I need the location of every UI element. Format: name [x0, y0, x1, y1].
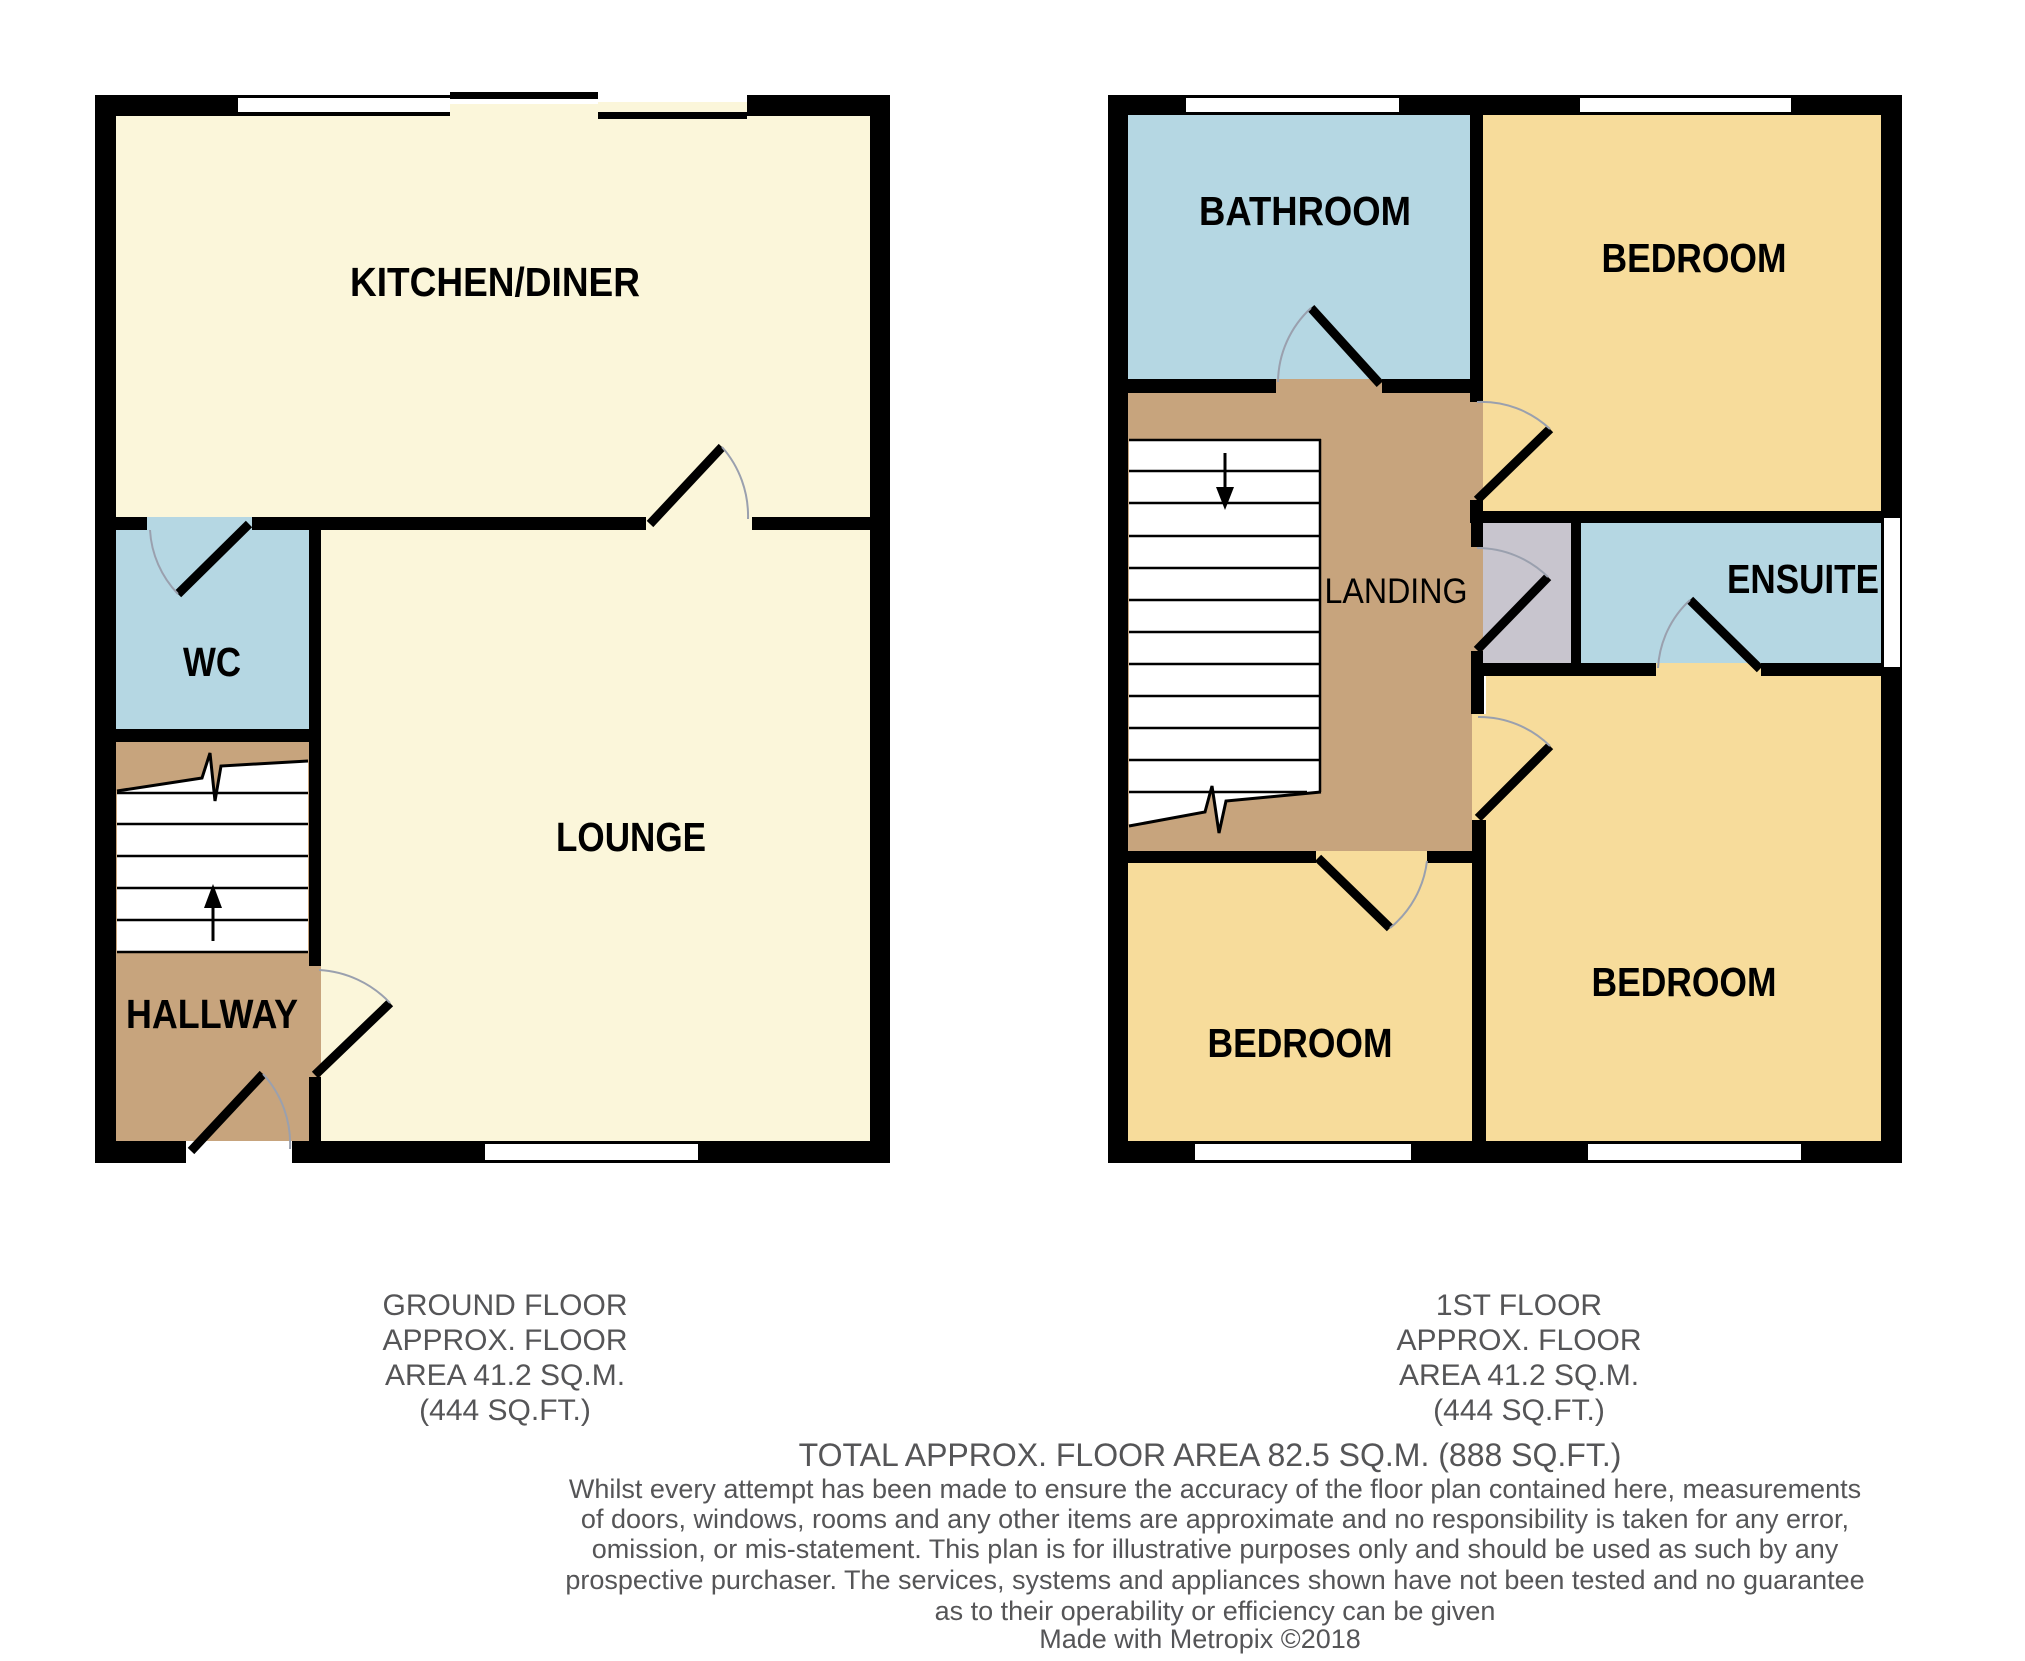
- svg-text:of doors, windows, rooms and a: of doors, windows, rooms and any other i…: [581, 1504, 1849, 1534]
- svg-text:BEDROOM: BEDROOM: [1592, 959, 1777, 1005]
- svg-text:BEDROOM: BEDROOM: [1602, 235, 1787, 281]
- svg-text:LOUNGE: LOUNGE: [556, 814, 706, 860]
- svg-text:AREA 41.2 SQ.M.: AREA 41.2 SQ.M.: [1399, 1359, 1639, 1392]
- svg-text:omission, or mis-statement. Th: omission, or mis-statement. This plan is…: [592, 1534, 1839, 1564]
- svg-text:APPROX. FLOOR: APPROX. FLOOR: [1396, 1324, 1641, 1357]
- svg-text:prospective purchaser. The ser: prospective purchaser. The services, sys…: [565, 1565, 1864, 1595]
- svg-text:LANDING: LANDING: [1325, 572, 1468, 611]
- svg-text:BATHROOM: BATHROOM: [1199, 188, 1411, 234]
- svg-text:Whilst every attempt has been: Whilst every attempt has been made to en…: [569, 1474, 1861, 1504]
- svg-text:(444 SQ.FT.): (444 SQ.FT.): [1433, 1394, 1605, 1427]
- svg-text:1ST FLOOR: 1ST FLOOR: [1436, 1289, 1602, 1322]
- svg-text:as to their operability or eff: as to their operability or efficiency ca…: [935, 1596, 1496, 1626]
- svg-text:BEDROOM: BEDROOM: [1208, 1020, 1393, 1066]
- svg-text:HALLWAY: HALLWAY: [126, 991, 298, 1037]
- svg-text:(444 SQ.FT.): (444 SQ.FT.): [419, 1394, 591, 1427]
- svg-text:Made with Metropix ©2018: Made with Metropix ©2018: [1039, 1624, 1361, 1654]
- svg-text:WC: WC: [183, 639, 241, 685]
- svg-text:KITCHEN/DINER: KITCHEN/DINER: [350, 259, 640, 305]
- svg-text:ENSUITE: ENSUITE: [1727, 556, 1879, 602]
- svg-text:GROUND FLOOR: GROUND FLOOR: [382, 1289, 627, 1322]
- svg-text:AREA 41.2 SQ.M.: AREA 41.2 SQ.M.: [385, 1359, 625, 1392]
- svg-text:APPROX. FLOOR: APPROX. FLOOR: [382, 1324, 627, 1357]
- svg-text:TOTAL APPROX. FLOOR AREA 82.5: TOTAL APPROX. FLOOR AREA 82.5 SQ.M. (888…: [799, 1437, 1622, 1473]
